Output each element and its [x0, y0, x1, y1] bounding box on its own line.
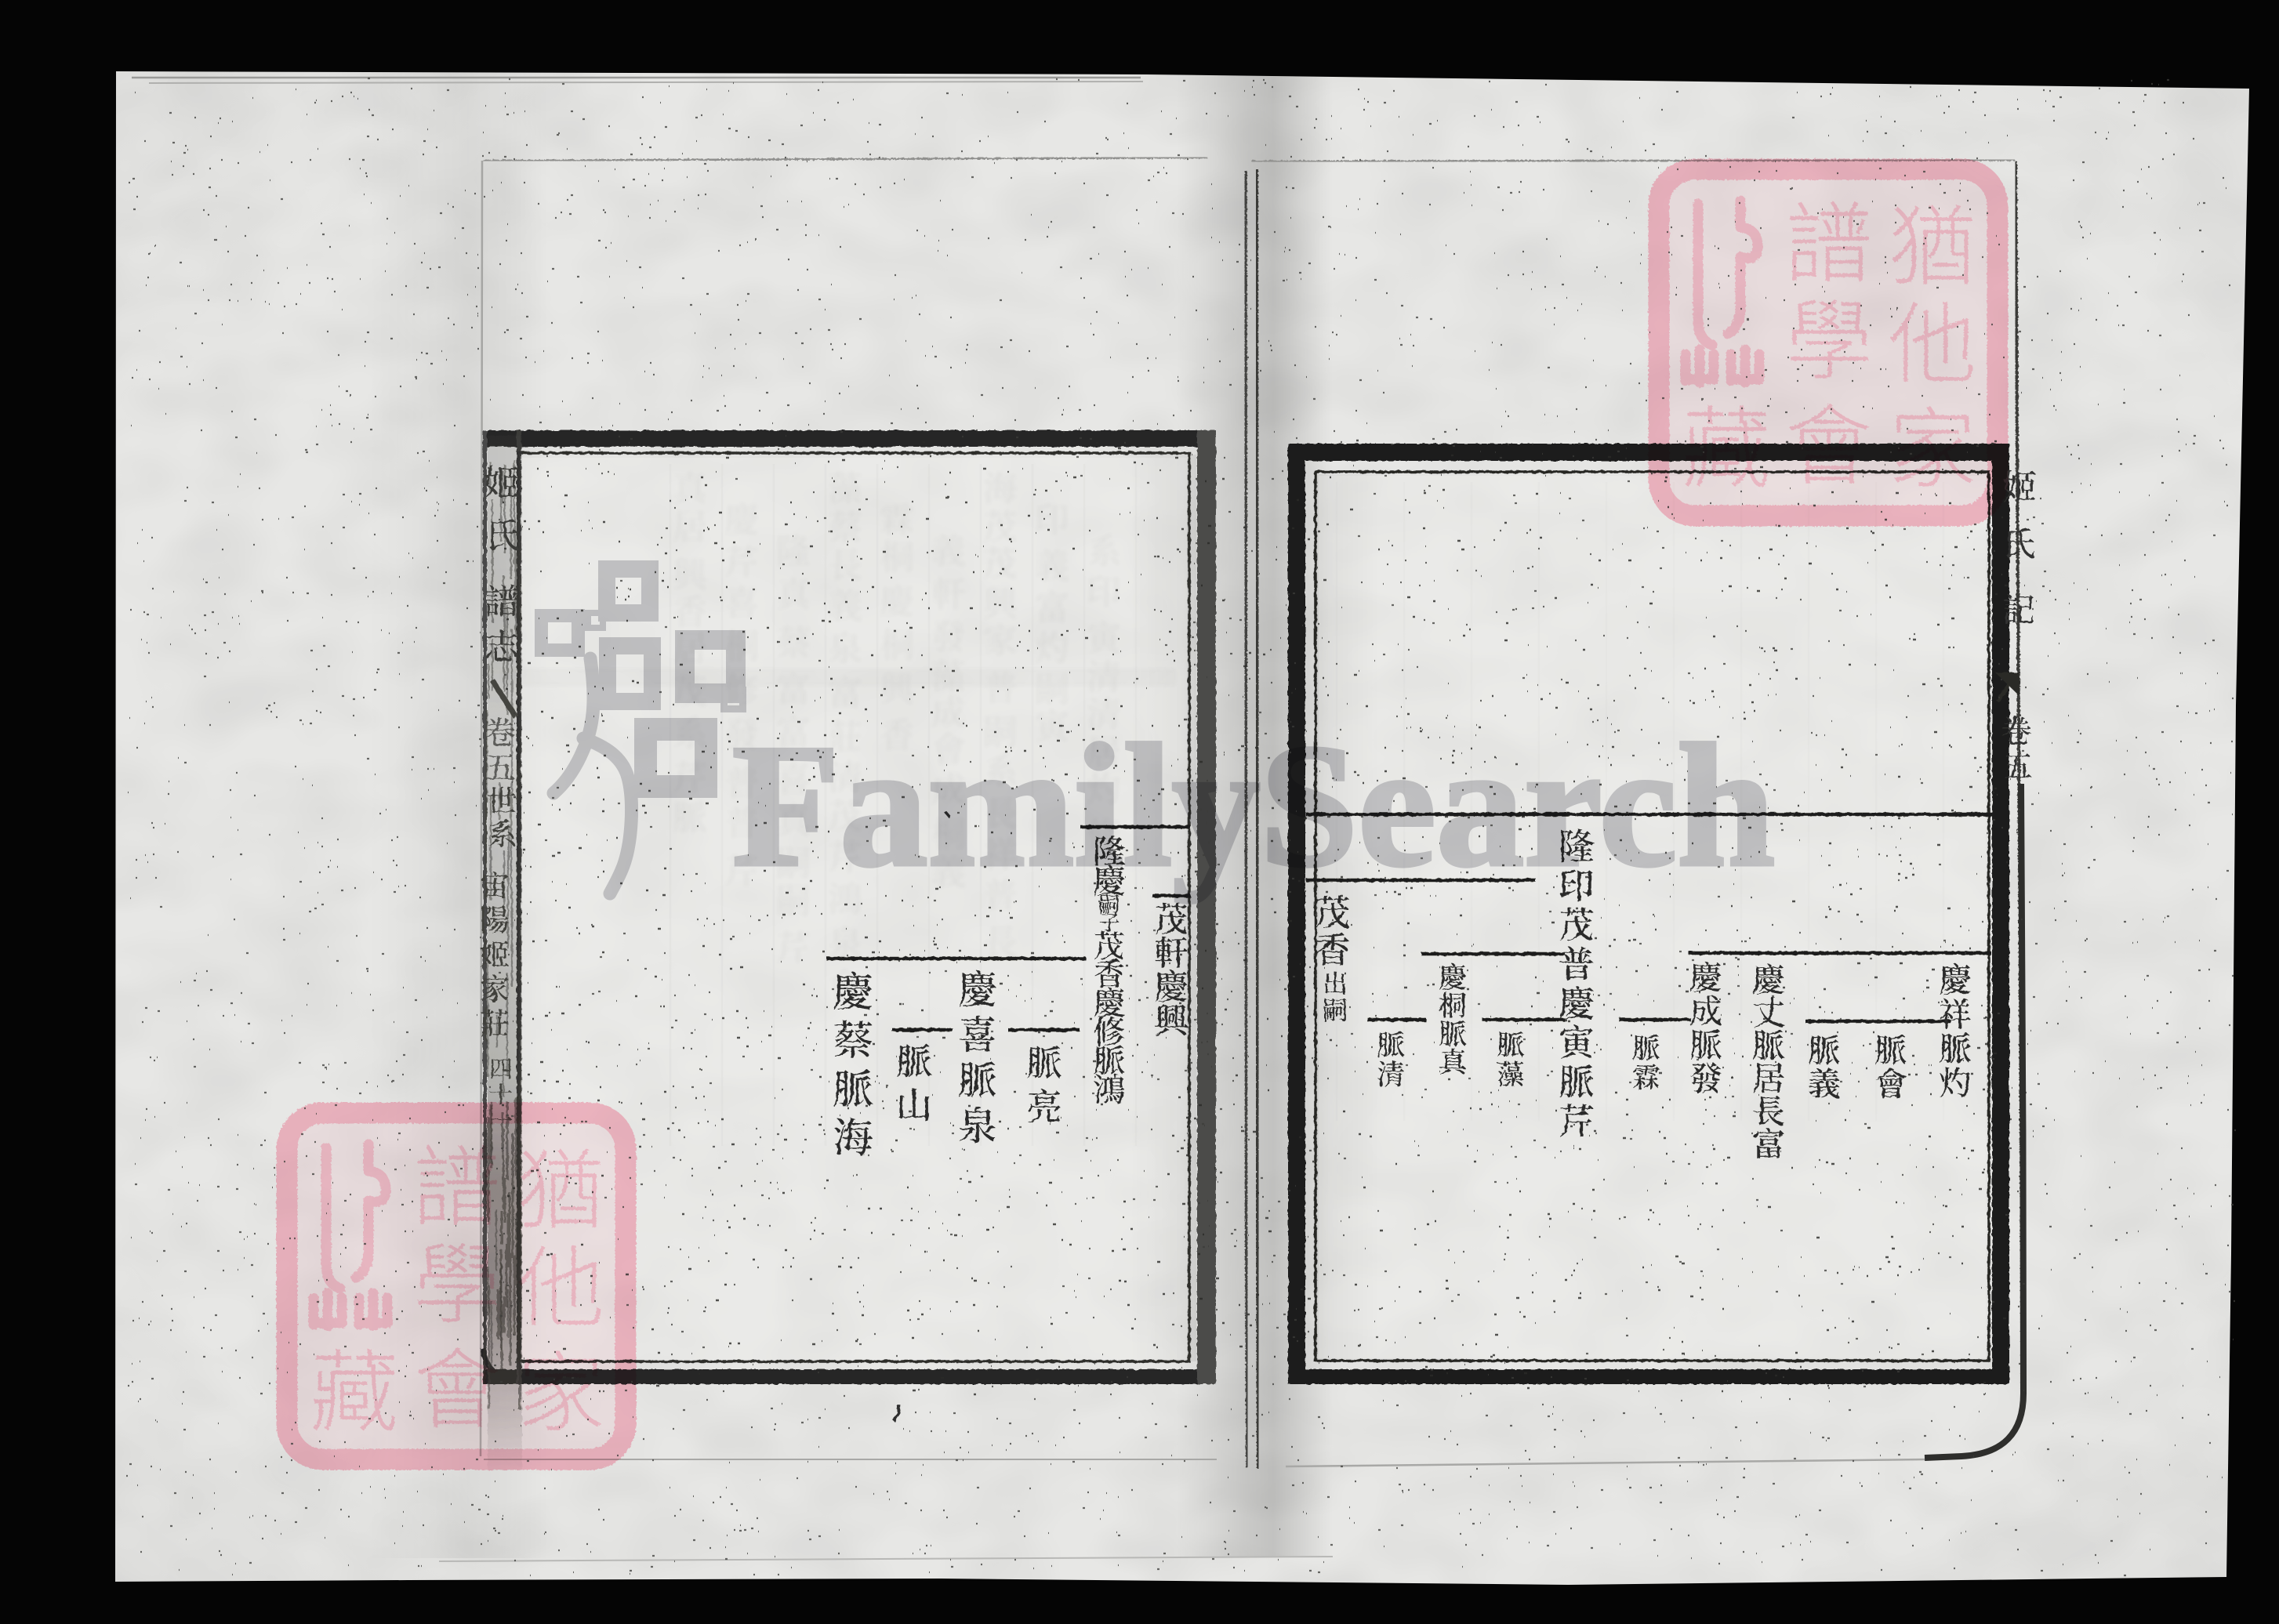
svg-text:FamilySearch: FamilySearch — [732, 709, 1775, 903]
